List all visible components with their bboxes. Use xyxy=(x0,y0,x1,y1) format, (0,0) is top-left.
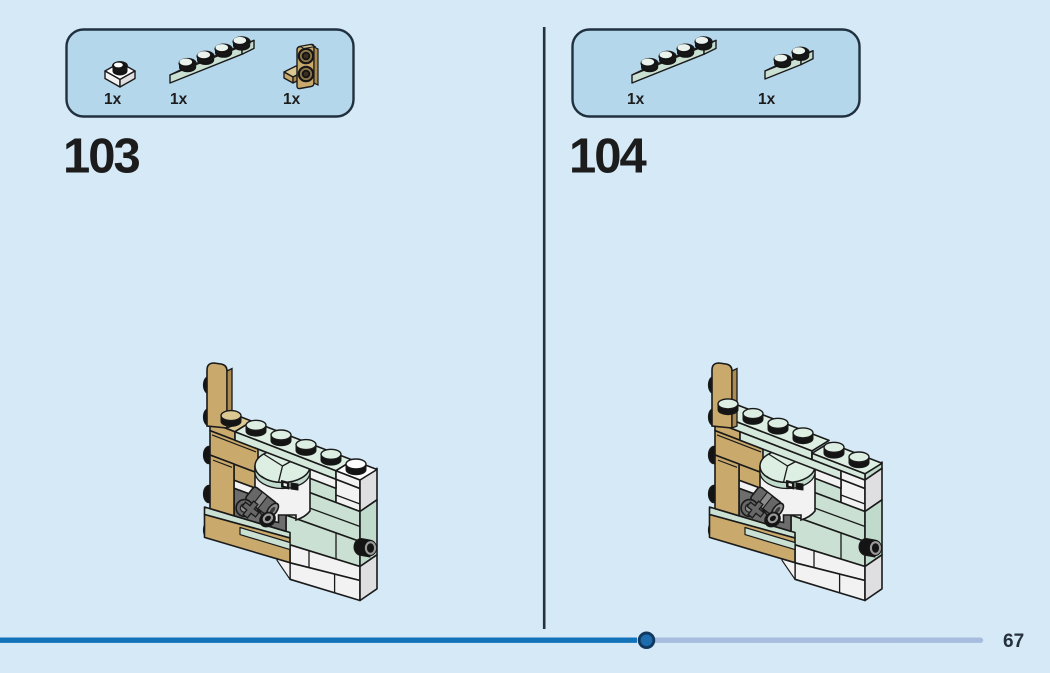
svg-text:1x: 1x xyxy=(758,91,776,108)
svg-text:67: 67 xyxy=(1003,631,1024,652)
svg-text:1x: 1x xyxy=(627,91,645,108)
svg-text:1x: 1x xyxy=(170,91,188,108)
svg-text:1x: 1x xyxy=(283,91,301,108)
svg-text:104: 104 xyxy=(569,130,647,184)
svg-text:1x: 1x xyxy=(104,91,122,108)
svg-text:103: 103 xyxy=(63,130,140,184)
